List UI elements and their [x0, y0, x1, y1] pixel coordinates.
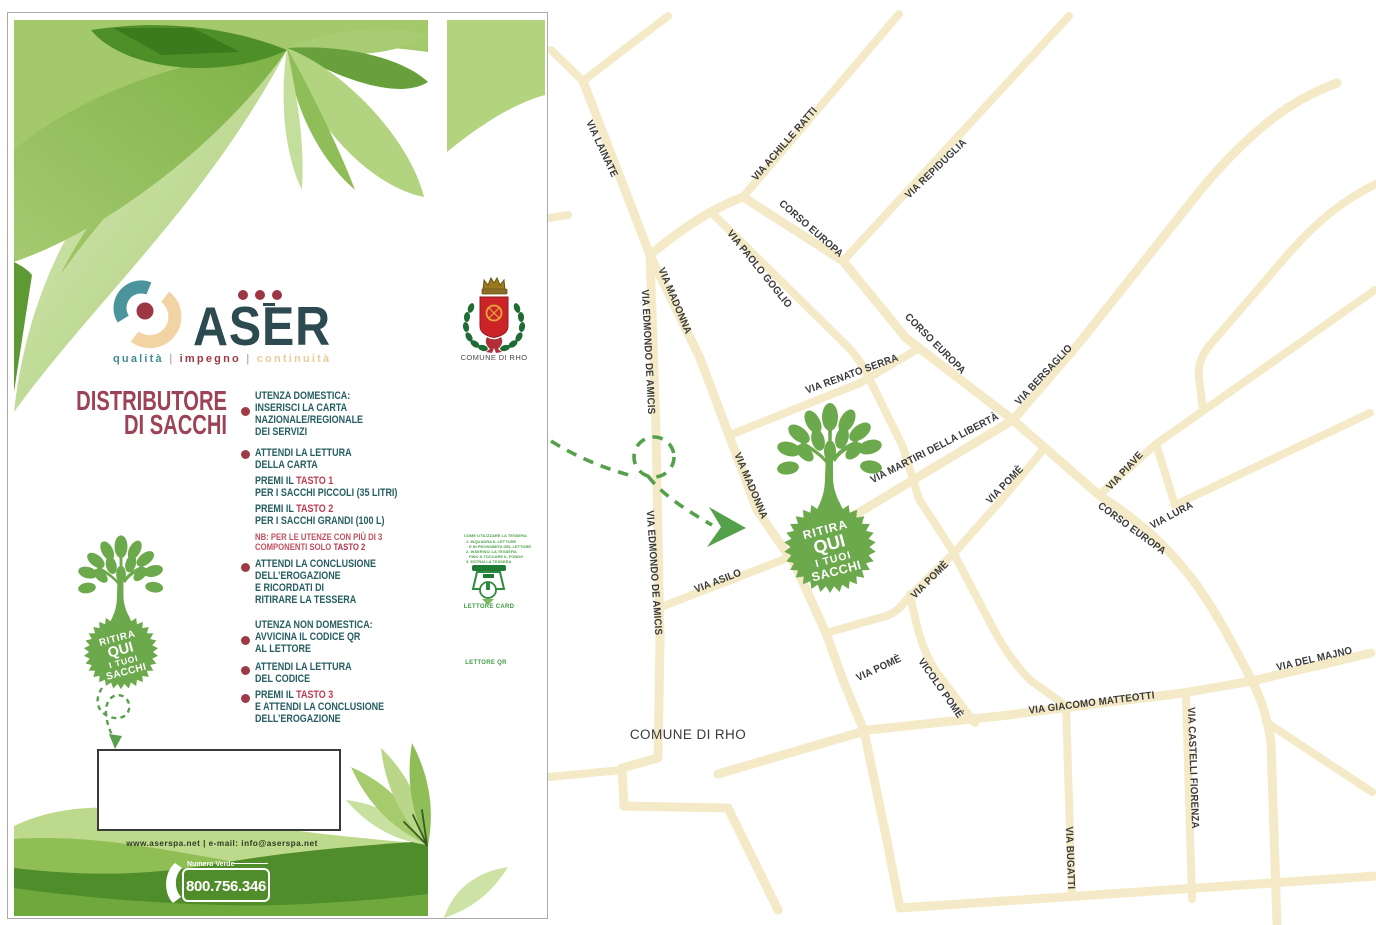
svg-text:VIA PAOLO GOGLIO: VIA PAOLO GOGLIO [724, 228, 794, 310]
svg-text:VIA BERSAGLIO: VIA BERSAGLIO [1013, 343, 1075, 408]
svg-text:800.756.346: 800.756.346 [186, 878, 266, 895]
svg-text:COME UTILIZZARE LA TESSERA: COME UTILIZZARE LA TESSERA [464, 533, 527, 538]
svg-text:VIA PIAVE: VIA PIAVE [1104, 450, 1145, 493]
svg-text:VICOLO POMÈ: VICOLO POMÈ [915, 655, 966, 720]
svg-text:VIA POMÈ: VIA POMÈ [854, 651, 904, 684]
svg-text:Numero Verde: Numero Verde [187, 861, 235, 868]
svg-text:3. ESTRAI LA TESSERA: 3. ESTRAI LA TESSERA [466, 559, 512, 564]
svg-text:VIA ACHILLE RATTI: VIA ACHILLE RATTI [750, 105, 820, 183]
svg-text:VIA REPIDUGLIA: VIA REPIDUGLIA [903, 137, 969, 201]
svg-text:LETTORE CARD: LETTORE CARD [464, 604, 515, 610]
svg-text:LETTORE QR: LETTORE QR [465, 660, 507, 666]
svg-text:VIA POMÈ: VIA POMÈ [908, 558, 952, 602]
svg-text:COMUNE DI RHO: COMUNE DI RHO [630, 727, 746, 742]
svg-text:VIA BUGATTI: VIA BUGATTI [1063, 826, 1077, 889]
svg-text:VIA MADONNA: VIA MADONNA [731, 451, 769, 521]
svg-text:COMUNE DI RHO: COMUNE DI RHO [461, 353, 528, 362]
svg-text:VIA MADONNA: VIA MADONNA [655, 266, 693, 336]
